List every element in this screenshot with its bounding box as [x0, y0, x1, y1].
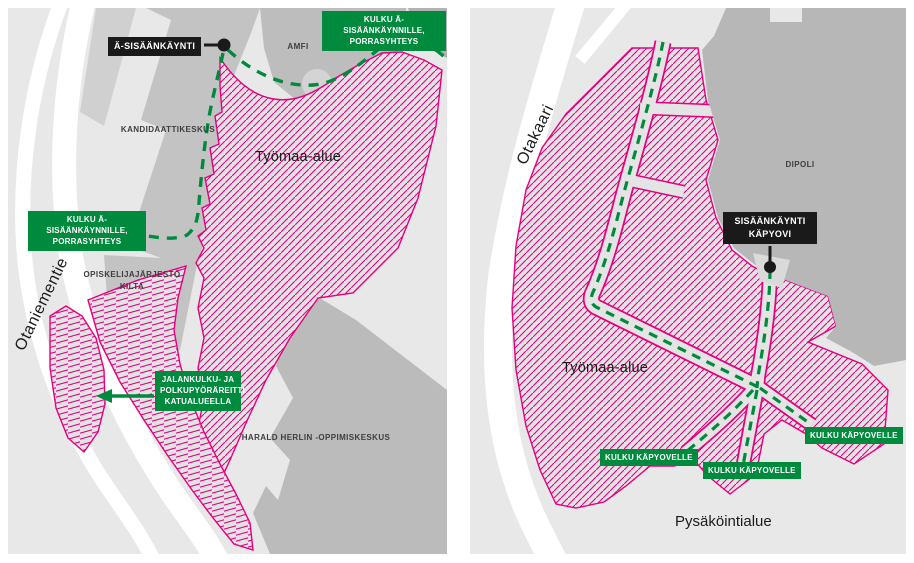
- route-label-kapyovi-left: KULKU KÄPYOVELLE: [600, 449, 698, 466]
- building-label-kilta: OPISKELIJAJÄRJESTÖ KILTA: [72, 269, 192, 293]
- route-label-access-left: KULKU Ä-SISÄÄNKÄYNNILLE, PORRASYHTEYS: [28, 211, 146, 251]
- building-label-kandidaattikeskus: KANDIDAATTIKESKUS: [108, 124, 228, 136]
- kapyovi-entrance-label: SISÄÄNKÄYNTI KÄPYOVI: [723, 212, 817, 244]
- building-label-harald-herlin: HARALD HERLIN -OPPIMISKESKUS: [216, 432, 416, 444]
- route-label-pedestrian: JALANKULKU- JA POLKUPYÖRÄREITTI KATUALUE…: [155, 371, 241, 411]
- construction-map-figure: Otaniementie Ä-SISÄÄNKÄYNTI AMFI KULKU Ä…: [0, 0, 914, 563]
- work-area-label-right: Työmaa-alue: [562, 360, 648, 376]
- right-map-svg: [470, 8, 906, 554]
- right-map-panel: Otakaari DIPOLI SISÄÄNKÄYNTI KÄPYOVI Työ…: [470, 8, 906, 554]
- left-map-panel: Otaniementie Ä-SISÄÄNKÄYNTI AMFI KULKU Ä…: [8, 8, 447, 554]
- kapyovi-entrance-dot: [764, 261, 776, 273]
- building-label-dipoli: DIPOLI: [760, 159, 840, 171]
- parking-area-label: Pysäköintialue: [675, 513, 772, 530]
- a-entrance-dot: [218, 39, 231, 52]
- building-label-amfi: AMFI: [278, 41, 318, 53]
- route-label-kapyovi-right: KULKU KÄPYOVELLE: [805, 427, 903, 444]
- work-area-label-left: Työmaa-alue: [255, 149, 341, 165]
- road-branch: [580, 8, 628, 60]
- a-entrance-label: Ä-SISÄÄNKÄYNTI: [108, 37, 201, 56]
- route-label-kapyovi-middle: KULKU KÄPYOVELLE: [703, 462, 801, 479]
- route-label-access-top: KULKU Ä-SISÄÄNKÄYNNILLE, PORRASYHTEYS: [322, 11, 446, 51]
